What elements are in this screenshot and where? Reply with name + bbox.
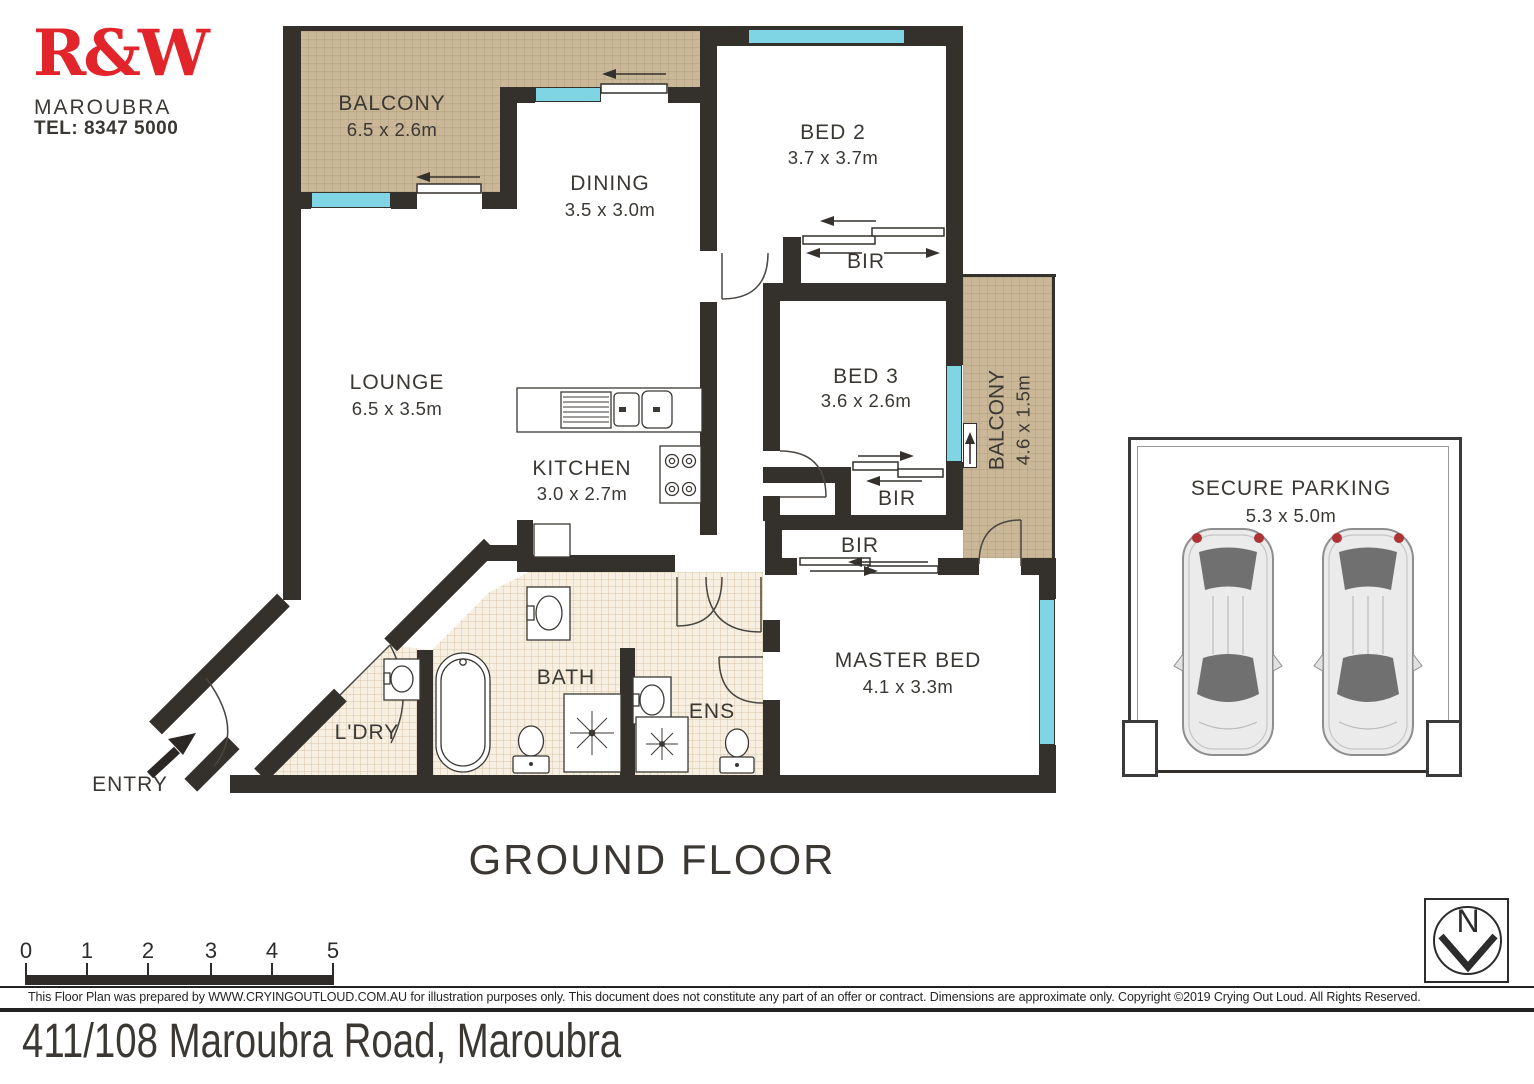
balcony-right-dims: 4.6 x 1.5m [1013, 375, 1035, 465]
scale-bar-rule [25, 975, 334, 985]
room-label-bir-bed3: BIR [878, 487, 916, 511]
room-dims-master-bed: 4.1 x 3.3m [863, 676, 953, 698]
room-label-bir-bed2: BIR [847, 250, 885, 274]
plan-detail-overlay [0, 0, 1534, 1084]
room-label-entry: ENTRY [92, 773, 168, 797]
balcony-right-name: BALCONY [986, 370, 1010, 470]
room-dims-balcony-top: 6.5 x 2.6m [347, 119, 437, 141]
room-dims-kitchen: 3.0 x 2.7m [537, 483, 627, 505]
ensuite-fixtures-icon [633, 677, 754, 773]
floor-title: GROUND FLOOR [468, 836, 835, 884]
room-label-bir-master: BIR [841, 534, 879, 558]
floor-plan-page: R&W MAROUBRA TEL: 8347 5000 [0, 0, 1534, 1084]
scale-label-2: 2 [142, 938, 154, 964]
room-dims-lounge: 6.5 x 3.5m [352, 398, 442, 420]
scale-label-0: 0 [20, 938, 32, 964]
laundry-tub-icon [384, 659, 420, 700]
scale-label-5: 5 [327, 938, 339, 964]
room-label-balcony-top: BALCONY [338, 92, 445, 116]
room-label-parking: SECURE PARKING [1191, 477, 1391, 501]
disclaimer-text: This Floor Plan was prepared by WWW.CRYI… [28, 990, 1518, 1004]
room-label-kitchen: KITCHEN [532, 457, 631, 481]
entry-direction-arrow [150, 733, 196, 775]
room-label-master-bed: MASTER BED [835, 649, 982, 673]
room-label-laundry: L'DRY [335, 721, 400, 745]
room-label-balcony-right: BALCONY 4.6 x 1.5m [986, 370, 1035, 470]
divider-line [0, 986, 1534, 988]
scale-label-3: 3 [205, 938, 217, 964]
room-label-bed2: BED 2 [800, 121, 866, 145]
room-dims-bed2: 3.7 x 3.7m [788, 147, 878, 169]
scale-label-4: 4 [266, 938, 278, 964]
scale-label-1: 1 [81, 938, 93, 964]
room-label-bed3: BED 3 [833, 365, 899, 389]
property-address: 411/108 Maroubra Road, Maroubra [22, 1014, 621, 1069]
divider-line [0, 1008, 1534, 1012]
room-dims-dining: 3.5 x 3.0m [565, 199, 655, 221]
car-top-view-icon [1314, 529, 1422, 755]
room-label-dining: DINING [570, 172, 650, 196]
room-label-ens: ENS [689, 700, 735, 724]
room-dims-parking: 5.3 x 5.0m [1246, 505, 1336, 527]
room-label-lounge: LOUNGE [350, 371, 445, 395]
car-top-view-icon [1174, 529, 1282, 755]
room-dims-bed3: 3.6 x 2.6m [821, 390, 911, 412]
room-label-bath: BATH [537, 666, 595, 690]
compass-north-label: N [1456, 903, 1479, 940]
